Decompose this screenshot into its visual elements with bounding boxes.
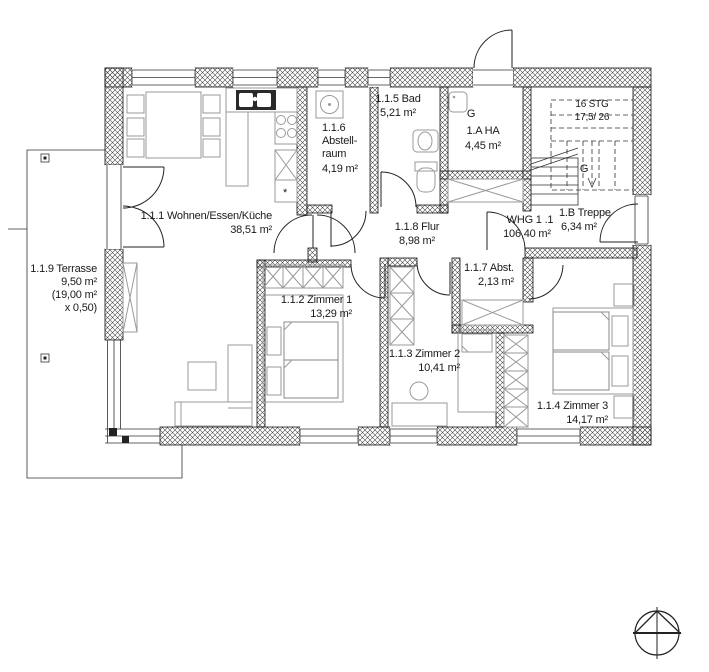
label-flur: 1.1.8 Flur [395, 221, 440, 233]
label-flur-area: 8,98 m² [399, 235, 435, 247]
label-whg-area: 106,40 m² [503, 228, 551, 240]
label-abstellraum-2: raum [322, 148, 346, 160]
terrace-french-door [105, 165, 164, 249]
stairwell-exterior-door [600, 195, 651, 245]
abst-cabinet [462, 300, 523, 325]
label-zimmer3-area: 14,17 m² [566, 414, 608, 426]
label-wohnen: 1.1.1 Wohnen/Essen/Küche [141, 210, 272, 222]
window-top-1 [132, 68, 195, 87]
label-zimmer1-area: 13,29 m² [310, 308, 352, 320]
stove-icon [277, 116, 297, 138]
dining-table [146, 92, 201, 158]
zimmer2-bed [458, 330, 496, 412]
stairs-lower-flight [531, 148, 578, 205]
label-abstellraum-area: 4,19 m² [322, 163, 358, 175]
entrance-door [473, 30, 513, 87]
living-hall-door [274, 215, 355, 253]
label-terrasse-gross: (19,00 m² [52, 289, 98, 301]
corner-window [105, 340, 160, 443]
abstellraum-door [331, 211, 366, 247]
window-top-4 [368, 68, 390, 87]
window-top-3 [318, 68, 345, 87]
label-terrasse-factor: x 0,50) [65, 302, 97, 314]
label-ha-tag: G [467, 108, 475, 120]
kitchen-sink-icon [236, 90, 276, 110]
window-bottom-2 [390, 427, 437, 445]
zimmer2-wardrobe [390, 267, 414, 345]
zimmer2-door [417, 262, 450, 295]
zimmer3-double-bed [553, 284, 634, 418]
label-treppe: 1.B Treppe [559, 207, 611, 219]
label-abst-area: 2,13 m² [478, 276, 514, 288]
coffee-table [188, 362, 216, 390]
label-stairs-steps: 16 STG [575, 99, 609, 110]
floor-plan-drawing: * [0, 0, 709, 672]
label-abstellraum-1: Abstell- [322, 135, 358, 147]
svg-text:*: * [283, 187, 288, 199]
label-treppe-area: 6,34 m² [561, 221, 597, 233]
toilet-icon [415, 162, 437, 192]
floor-plan-page: * [0, 0, 709, 672]
zimmer2-desk [392, 403, 447, 426]
zimmer1-wardrobe [263, 265, 343, 288]
label-terrasse-area: 9,50 m² [61, 276, 97, 288]
hall-cabinet [448, 179, 523, 202]
ha-sink-icon [449, 92, 467, 112]
label-zimmer2-area: 10,41 m² [418, 362, 460, 374]
label-wohnen-area: 38,51 m² [230, 224, 272, 236]
dining-chairs [127, 95, 220, 157]
zimmer3-wardrobe [504, 335, 528, 427]
zimmer3-door [529, 265, 563, 299]
label-stairs-dims: 17,5/ 26 [575, 112, 610, 123]
label-stairs-tag: G [580, 163, 588, 175]
sofa [175, 345, 252, 426]
zimmer2-chair [410, 382, 428, 400]
label-zimmer2: 1.1.3 Zimmer 2 [389, 348, 460, 360]
label-bad-area: 5,21 m² [380, 107, 416, 119]
washing-machine-icon [316, 91, 343, 118]
washbasin-icon [413, 130, 438, 152]
window-bottom-3 [517, 427, 580, 445]
label-ha-area: 4,45 m² [465, 140, 501, 152]
north-arrow-icon [633, 607, 681, 659]
window-top-2 [233, 68, 277, 87]
label-abstellraum-num: 1.1.6 [322, 122, 346, 134]
bad-door [381, 172, 416, 207]
window-bottom-1 [300, 427, 358, 445]
label-ha: 1.A HA [466, 125, 500, 137]
label-bad: 1.1.5 Bad [375, 93, 420, 105]
radiator [123, 263, 137, 332]
label-zimmer3: 1.1.4 Zimmer 3 [537, 400, 608, 412]
label-terrasse: 1.1.9 Terrasse [30, 263, 97, 275]
label-zimmer1: 1.1.2 Zimmer 1 [281, 294, 352, 306]
label-abst: 1.1.7 Abst. [464, 262, 514, 274]
label-whg: WHG 1 .1 [507, 214, 554, 226]
